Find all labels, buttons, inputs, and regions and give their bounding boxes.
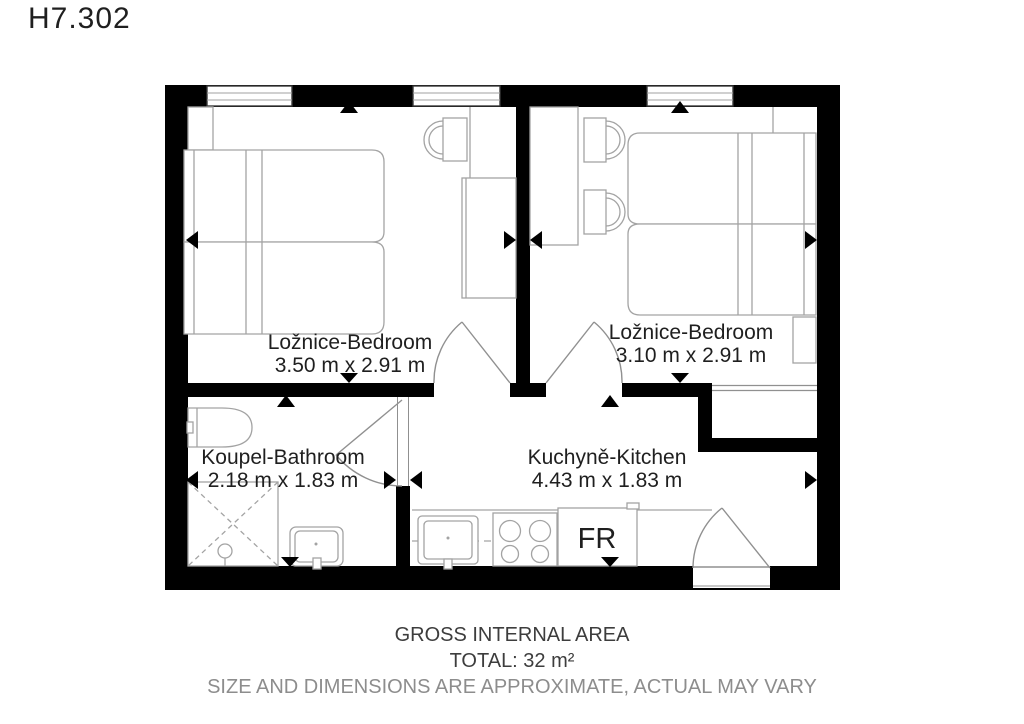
floorplan-canvas	[0, 0, 1024, 724]
footer-total: TOTAL: 32 m²	[0, 648, 1024, 674]
nightstand-icon	[793, 317, 816, 363]
desk-icon	[462, 107, 516, 298]
chair-icon	[584, 118, 625, 162]
footer: GROSS INTERNAL AREA TOTAL: 32 m² SIZE AN…	[0, 622, 1024, 700]
arrow-up-icon	[601, 395, 619, 407]
shower-icon	[188, 482, 278, 566]
table-icon	[530, 107, 578, 245]
bedroom1-furniture	[184, 107, 516, 334]
door-bedroom1	[434, 322, 510, 383]
room-name: Koupel-Bathroom	[201, 446, 364, 469]
fridge-label: FR	[578, 523, 617, 556]
nightstand-icon	[188, 107, 213, 150]
chair-icon	[424, 118, 467, 161]
room-label-bedroom2: Ložnice-Bedroom 3.10 m x 2.91 m	[609, 321, 774, 367]
double-bed-icon	[184, 150, 384, 334]
room-label-bathroom: Koupel-Bathroom 2.18 m x 1.83 m	[201, 446, 364, 492]
window-bedroom1-left	[207, 86, 292, 106]
window-bedroom2	[647, 86, 733, 106]
room-name: Ložnice-Bedroom	[609, 321, 774, 344]
stove-icon	[493, 513, 557, 566]
washbasin-icon	[290, 527, 343, 569]
room-name: Ložnice-Bedroom	[268, 331, 433, 354]
toilet-icon	[187, 408, 252, 447]
floorplan-page: H7.302	[0, 0, 1024, 724]
footer-disclaimer: SIZE AND DIMENSIONS ARE APPROXIMATE, ACT…	[0, 674, 1024, 700]
room-name: Kuchyně-Kitchen	[528, 446, 687, 469]
double-bed-icon	[628, 107, 816, 315]
door-entrance	[693, 508, 770, 588]
arrow-down-icon	[671, 373, 689, 383]
footer-area-title: GROSS INTERNAL AREA	[0, 622, 1024, 648]
room-dimensions: 2.18 m x 1.83 m	[201, 469, 364, 492]
room-dimensions: 4.43 m x 1.83 m	[528, 469, 687, 492]
room-label-kitchen: Kuchyně-Kitchen 4.43 m x 1.83 m	[528, 446, 687, 492]
room-dimensions: 3.50 m x 2.91 m	[268, 354, 433, 377]
window-icon	[207, 86, 733, 106]
kitchen-fixtures	[412, 503, 712, 569]
chair-icon	[584, 190, 625, 234]
room-label-bedroom1: Ložnice-Bedroom 3.50 m x 2.91 m	[268, 331, 433, 377]
alcove-edge-lines	[712, 386, 817, 391]
arrow-right-icon	[805, 471, 817, 489]
arrow-left-icon	[410, 471, 422, 489]
window-bedroom1-right	[413, 86, 500, 106]
kitchen-sink-icon	[418, 516, 478, 569]
room-dimensions: 3.10 m x 2.91 m	[609, 344, 774, 367]
